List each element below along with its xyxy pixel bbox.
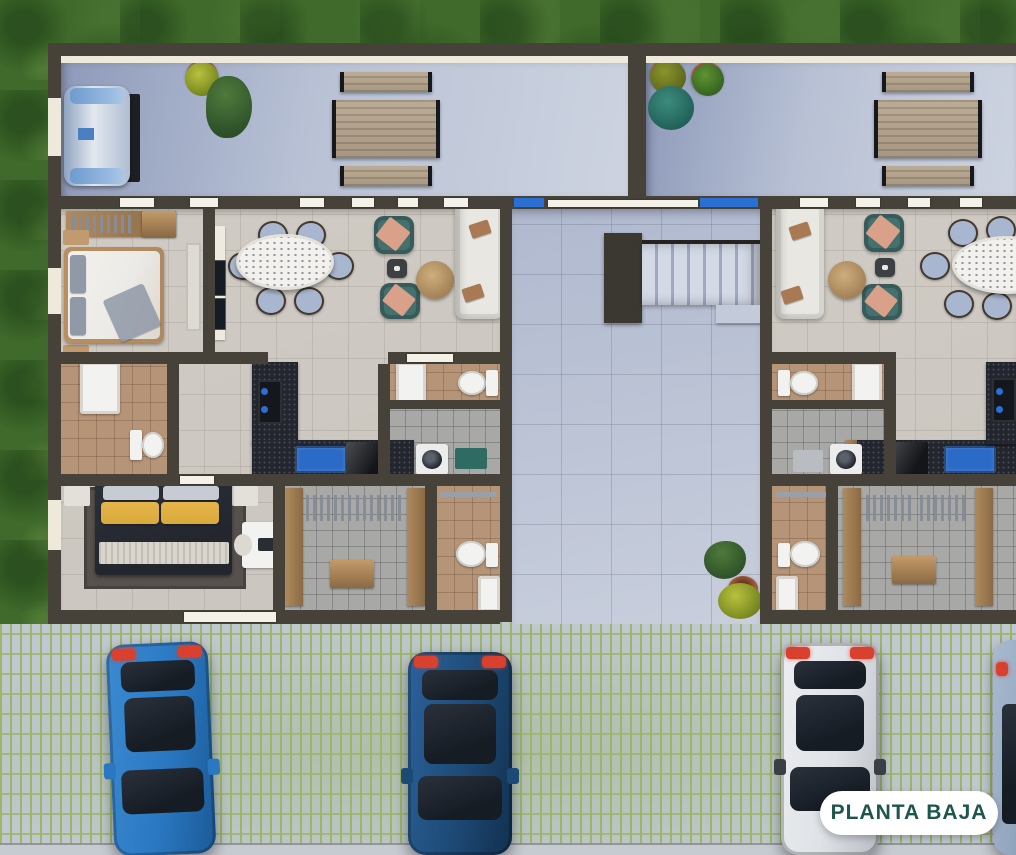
courtyard-wall-right [760, 209, 772, 622]
window [48, 268, 61, 314]
toilet-tank [486, 543, 498, 567]
washing-machine [416, 444, 448, 475]
wall-face-top [61, 56, 1016, 63]
hanging-clothes [356, 495, 402, 521]
interior-wall [48, 474, 512, 486]
wardrobe-cabinet [186, 243, 201, 331]
potted-plant [692, 64, 724, 96]
pillow [163, 486, 219, 500]
kitchen-sink [944, 446, 996, 473]
round-coffee-table [828, 261, 866, 299]
sunroof [124, 696, 196, 753]
window-sill [444, 198, 468, 207]
outdoor-table [332, 100, 440, 158]
rear-window [794, 661, 866, 689]
toilet-tank [778, 370, 790, 396]
stove-knob [261, 388, 268, 395]
window [48, 500, 61, 550]
teal-armchair [864, 214, 904, 252]
windshield [121, 767, 205, 815]
window-sill [800, 198, 828, 207]
window-sill [398, 198, 418, 207]
grass-top [0, 0, 1016, 46]
floor-label: PLANTA BAJA [820, 791, 998, 835]
outdoor-bench [882, 166, 974, 186]
outdoor-bench [882, 72, 974, 92]
shower-bar [440, 492, 496, 497]
pillow [70, 297, 86, 335]
oven [214, 298, 226, 330]
side-mirror [507, 768, 519, 784]
window [48, 98, 61, 156]
interior-wall [826, 486, 838, 610]
windshield [418, 776, 502, 820]
interior-wall [167, 364, 179, 474]
side-window [1002, 704, 1016, 824]
grill-badge [78, 128, 94, 140]
taillight [786, 647, 810, 659]
taillight [112, 648, 137, 661]
pillow [103, 486, 159, 500]
floor-plan-render: PLANTA BAJA [0, 0, 1016, 855]
nightstand [64, 486, 90, 506]
floor-label-text: PLANTA BAJA [831, 801, 988, 825]
vanity-sink [80, 362, 120, 414]
laundry-cabinet [793, 450, 823, 472]
wardrobe-box [142, 211, 176, 237]
laundry-board [455, 448, 487, 469]
oven [214, 260, 226, 296]
side-mirror [207, 758, 220, 775]
vanity-sink [852, 362, 882, 404]
patio-divider-wall [628, 43, 646, 203]
taillight [178, 645, 203, 658]
closet-shelving [407, 488, 425, 606]
car-blue [105, 641, 216, 855]
dining-chair [982, 292, 1012, 320]
toilet [790, 541, 820, 567]
white-sofa [455, 201, 503, 319]
outdoor-bench [340, 166, 432, 186]
interior-wall [378, 364, 390, 474]
closet-shelving [285, 488, 303, 606]
toilet-tank [778, 543, 790, 567]
stair-lower-landing [716, 305, 764, 323]
entry-door-threshold [184, 612, 276, 622]
vanity-sink [478, 576, 500, 612]
window-sill [548, 200, 698, 207]
grass-left [0, 0, 48, 624]
stove-knob [996, 406, 1003, 413]
teal-armchair [374, 216, 414, 254]
grill-lid-top [70, 88, 124, 104]
rear-window [422, 670, 498, 700]
interior-wall [884, 364, 896, 474]
interior-wall [772, 474, 1016, 486]
stair-railing [642, 240, 764, 244]
dining-chair [294, 287, 324, 315]
outer-wall-bottom [760, 610, 1016, 624]
window-sill [190, 198, 218, 207]
toilet-tank [130, 430, 142, 460]
foot-bench [99, 542, 229, 564]
dining-chair [944, 290, 974, 318]
side-table [875, 258, 895, 277]
teal-armchair [380, 283, 420, 319]
window-sill [300, 198, 324, 207]
nightstand [63, 230, 89, 245]
stove-knob [261, 406, 268, 413]
potted-plant [718, 583, 762, 619]
hanging-clothes [866, 495, 912, 521]
stove [258, 380, 282, 424]
interior-wall [390, 400, 500, 409]
hanging-clothes [306, 495, 352, 521]
desk-chair [234, 534, 252, 556]
washing-machine [830, 444, 862, 475]
car-partial-right-edge [993, 640, 1016, 855]
window-sill [120, 198, 154, 207]
grill-lid-bottom [70, 168, 124, 184]
yellow-pillow [161, 502, 219, 524]
dresser [330, 560, 374, 588]
side-mirror [774, 759, 786, 775]
outer-wall-top [48, 43, 1016, 56]
interior-wall [425, 486, 437, 610]
car-navy [408, 652, 512, 855]
toilet [456, 541, 486, 567]
potted-plant [648, 86, 694, 130]
outdoor-table [874, 100, 982, 158]
toilet-tank [486, 370, 498, 396]
round-coffee-table [416, 261, 454, 299]
stove-knob [996, 388, 1003, 395]
taillight [996, 662, 1008, 676]
stove [992, 378, 1016, 422]
staircase [642, 243, 764, 305]
vanity-sink [396, 362, 426, 404]
teal-armchair [862, 284, 902, 320]
interior-wall [772, 400, 884, 409]
window-sill [856, 198, 880, 207]
interior-wall [48, 352, 268, 364]
dresser [892, 556, 936, 584]
toilet [790, 371, 818, 395]
sunroof [796, 695, 864, 751]
blue-glass-door [514, 198, 544, 207]
taillight [414, 656, 438, 668]
kitchen-sink [295, 446, 347, 473]
toilet [142, 432, 164, 458]
window-sill [960, 198, 982, 207]
outdoor-bench [340, 72, 432, 92]
side-table [387, 259, 407, 278]
interior-wall [203, 209, 215, 352]
window-sill [908, 198, 930, 207]
rear-window [120, 659, 195, 692]
stair-landing [604, 233, 642, 323]
taillight [482, 656, 506, 668]
side-mirror [401, 768, 413, 784]
closet-shelving [975, 488, 993, 606]
hanging-clothes [920, 495, 966, 521]
window-sill [352, 198, 374, 207]
oval-marble-dining-table [236, 234, 334, 290]
dining-chair [920, 252, 950, 280]
side-mirror [104, 763, 117, 780]
side-mirror [874, 759, 886, 775]
interior-wall [273, 486, 285, 610]
nightstand [232, 486, 258, 506]
door-threshold [180, 476, 214, 484]
blue-glass-door [700, 198, 758, 207]
vanity-sink [776, 576, 798, 612]
taillight [850, 647, 874, 659]
shower-bar [776, 492, 832, 497]
sunroof [424, 704, 496, 764]
yellow-pillow [101, 502, 159, 524]
pillow [70, 255, 86, 293]
interior-wall [772, 352, 896, 364]
dining-chair [256, 287, 286, 315]
door-threshold [407, 354, 453, 362]
closet-shelving [843, 488, 861, 606]
courtyard-wall-left [500, 209, 512, 622]
toilet [458, 371, 486, 395]
